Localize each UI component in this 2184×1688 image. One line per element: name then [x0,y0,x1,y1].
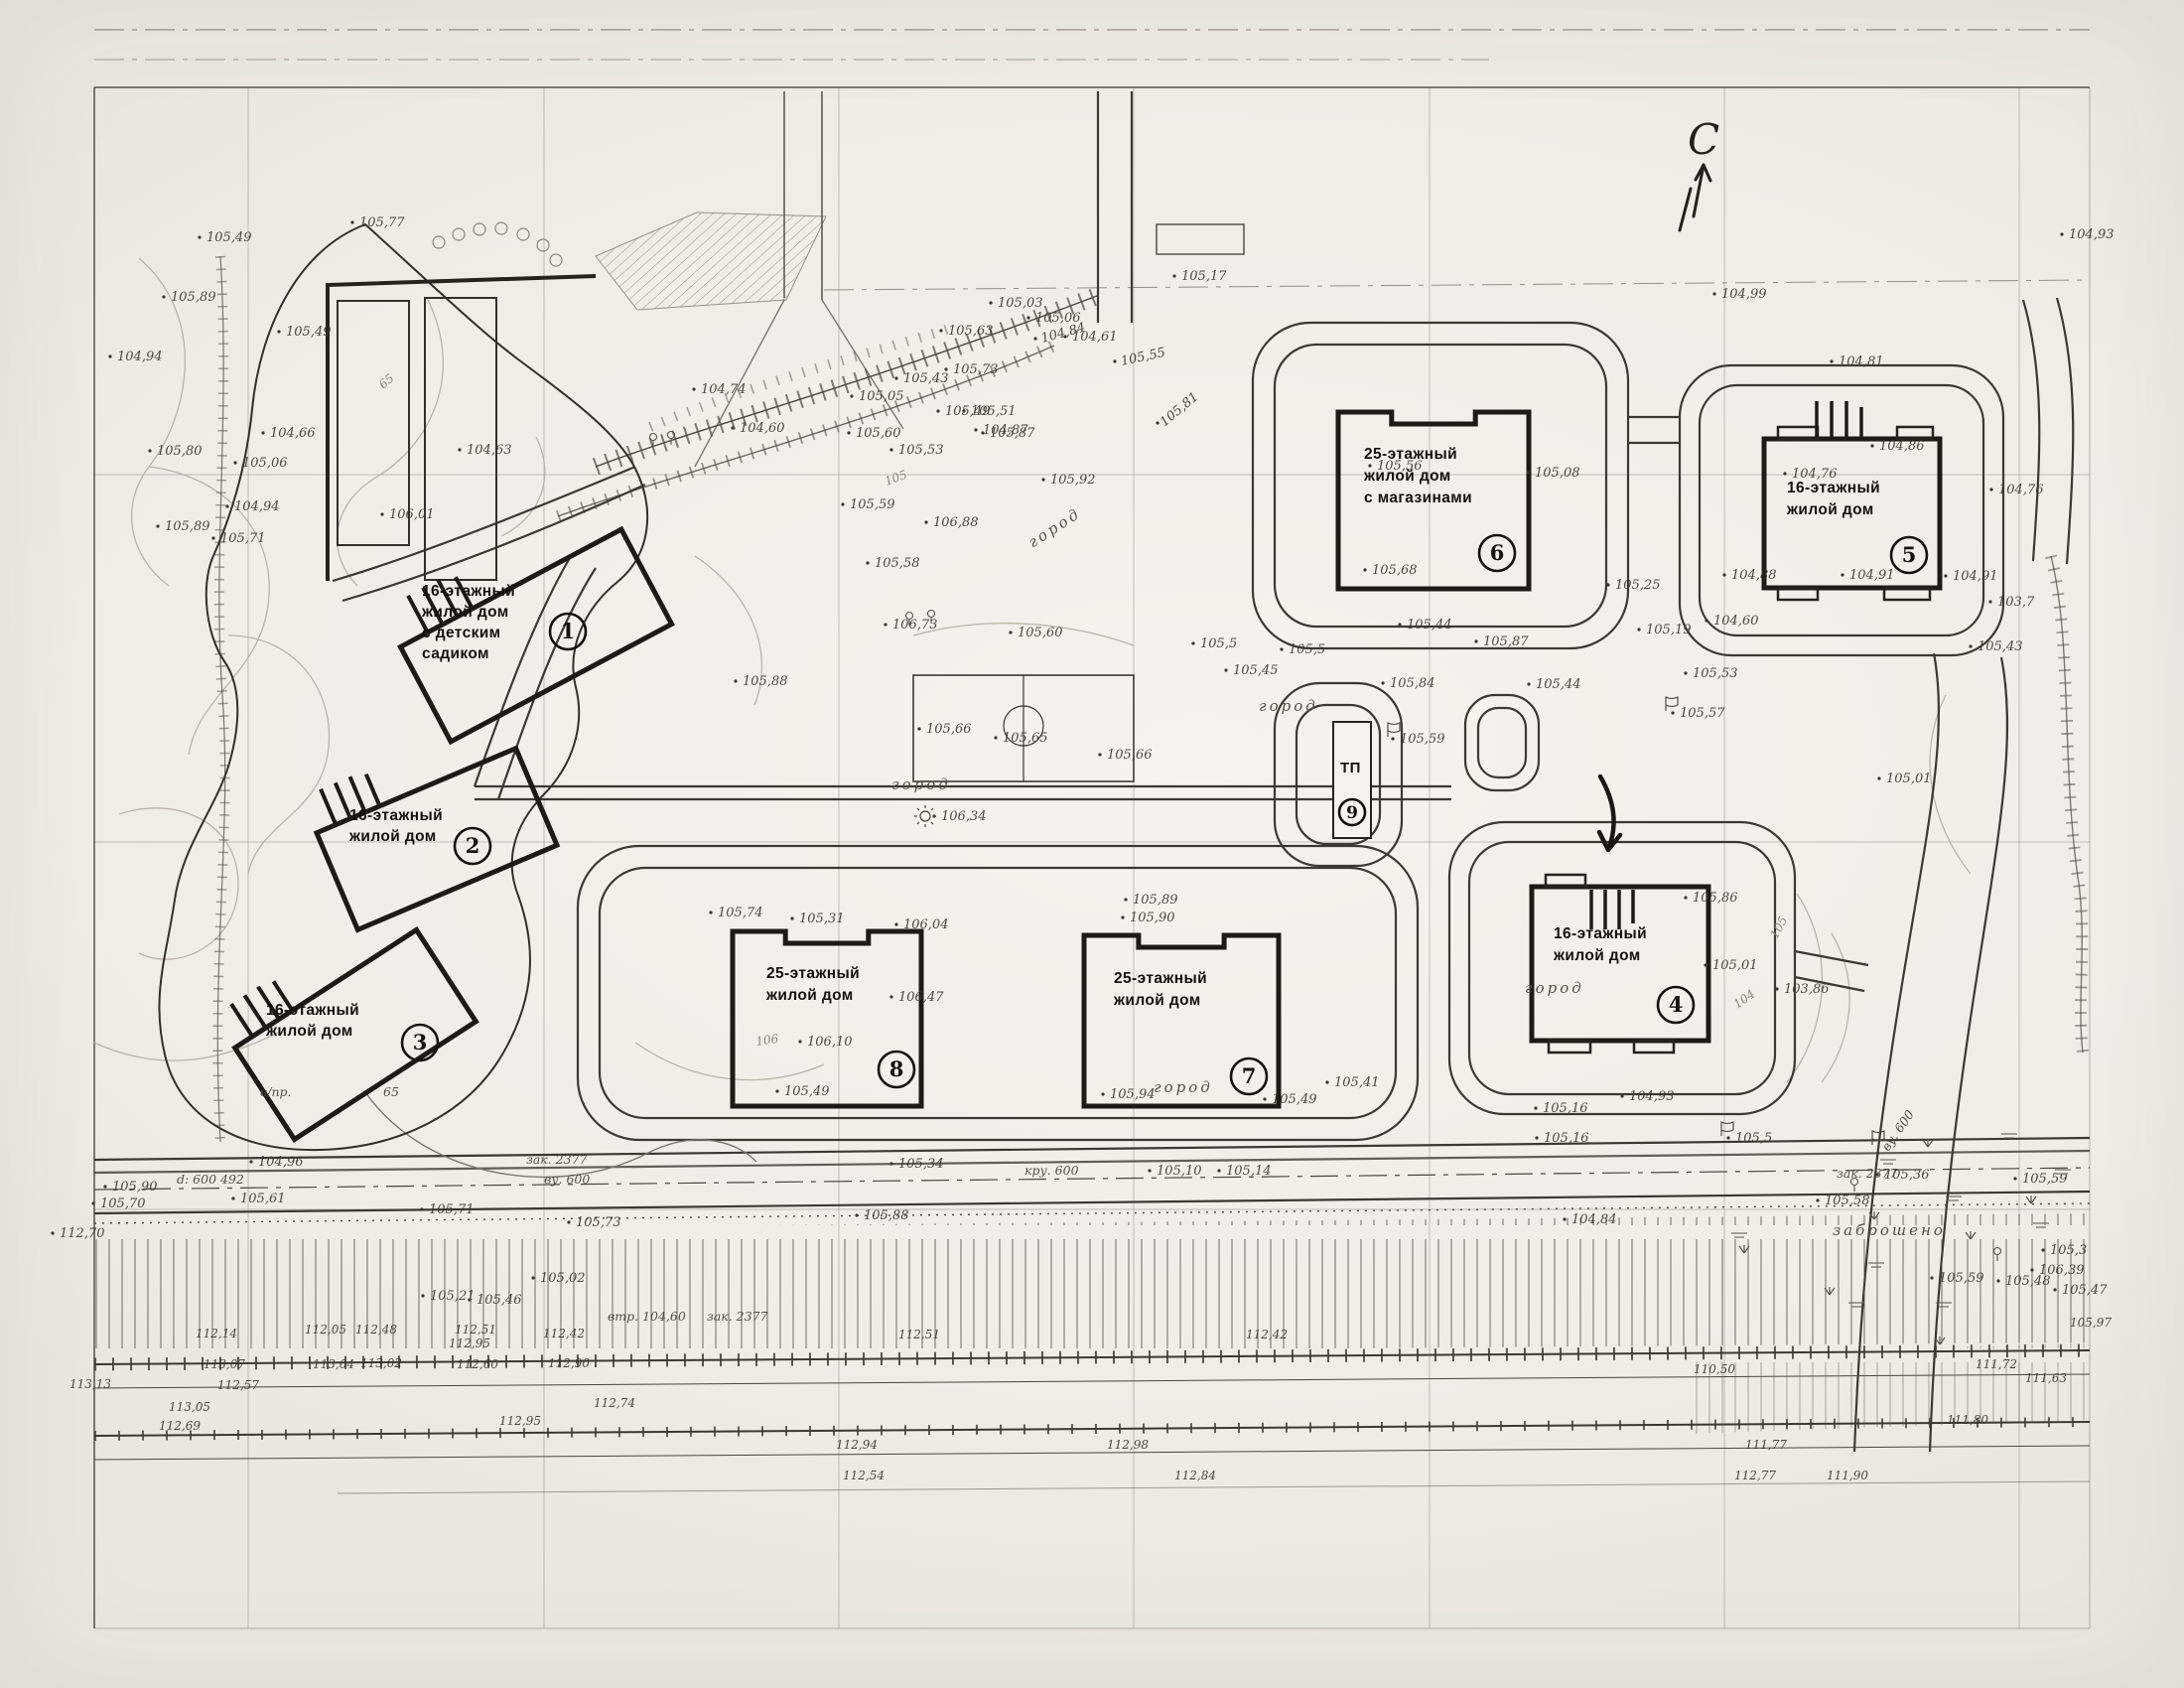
elevation-label: 105,60 [856,426,901,441]
elevation-mark: 104,93 [2060,227,2114,242]
elevation-label: 104,76 [1792,467,1838,482]
elevation-label: 112,60 [457,1357,498,1371]
marsh-icon [2001,1134,2017,1138]
elevation-label: 105,88 [743,674,788,689]
elevation-mark: 106,73 [884,618,937,633]
map-text-город: город [1024,504,1084,552]
elevation-label: 105,43 [1978,639,2023,654]
elevation-mark: 112,57 [217,1378,259,1392]
elevation-label: 105,16 [1543,1101,1588,1116]
elevation-label: 105,61 [240,1192,286,1206]
elevation-mark: 105,71 [211,531,265,546]
elevation-label: 113,04 [313,1357,354,1371]
elevation-mark: 112,70 [51,1226,104,1241]
map-text-заброшено: заброшено [1833,1221,1946,1239]
elevation-label: 104,94 [117,350,163,364]
flag-icon [1666,697,1678,711]
elevation-mark: 105,73 [567,1215,620,1230]
elevation-label: 105,53 [1693,666,1738,681]
elevation-mark: 105,89 [162,290,215,305]
tree-icon [650,434,657,441]
elevation-mark: 105,81 [1156,389,1201,430]
elevation-label: 105,47 [2062,1283,2108,1298]
elevation-label: 111,80 [1947,1413,1988,1427]
elevation-label: 105,87 [1483,634,1529,649]
elevation-label: 105,59 [850,497,895,512]
elevation-mark: 105,5 [1191,636,1237,651]
elevation-label: 105,53 [898,443,944,458]
elevation-mark: 105,59 [841,497,894,512]
elevation-mark: 112,51 [898,1328,940,1341]
note-label: d: 600 492 [177,1172,244,1187]
elevation-label: 105,5 [1289,642,1325,657]
elevation-label: 104,84 [1571,1212,1617,1227]
map-texts-layer: городгородгородгородгородзаброшено [891,504,1946,1239]
elevation-mark: 112,60 [457,1357,498,1371]
elevation-label: 105,10 [1157,1164,1202,1179]
building-2-number: 2 [466,833,480,858]
elevation-label: 105,89 [165,519,210,534]
elevation-label: 113,07 [204,1357,245,1371]
elevation-label: 104,93 [1629,1089,1675,1104]
elevation-label: 104,86 [1879,439,1925,454]
elevation-mark: 112,77 [1734,1469,1776,1482]
elevation-mark: 112,84 [1174,1469,1216,1482]
elevation-mark: 105,03 [989,296,1042,311]
building-4-number: 4 [1669,992,1684,1017]
elevation-label: 105,71 [429,1202,475,1217]
elevation-mark: 105,73 [944,362,998,377]
elevation-label: 113,13 [69,1377,111,1391]
elevation-mark: 105,68 [1363,563,1417,578]
contour-label: 105 [883,468,908,489]
building-1-number: 1 [561,619,576,643]
elevation-label: 105,74 [718,906,763,920]
elevation-mark: 112,05 [305,1323,346,1336]
elevation-mark: 104,99 [1712,287,1766,302]
elevation-label: 111,90 [1827,1469,1868,1482]
elevation-label: 106,10 [807,1035,853,1050]
note-label: зак. 2377 [707,1309,768,1324]
elevation-mark: 110,50 [1694,1362,1735,1376]
elevation-label: 104,93 [2069,227,2115,242]
elevation-mark: 105,90 [103,1180,157,1195]
elevation-label: 105,06 [242,456,288,471]
elevation-label: 112,51 [898,1328,940,1341]
elevation-mark: 105,61 [231,1192,285,1206]
elevation-mark: 105,86 [1684,891,1737,906]
elevation-label: 105,21 [430,1289,476,1304]
elevation-mark: 111,72 [1976,1357,2017,1371]
elevation-mark: 112,48 [355,1323,397,1336]
elevation-label: 106,04 [903,917,949,932]
elevation-label: 112,48 [355,1323,397,1336]
elevation-label: 105,57 [1680,706,1725,721]
building-8-label: жилой дом [765,987,854,1004]
elevation-mark: 105,44 [1398,618,1451,633]
elevation-label: 105,70 [100,1196,146,1211]
elevation-mark: 105,92 [1041,473,1095,488]
elevation-label: 112,70 [60,1226,105,1241]
elevation-label: 105,89 [171,290,216,305]
elevation-mark: 105,49 [1263,1092,1316,1107]
elevation-mark: 105,45 [1224,663,1278,678]
elevation-mark: 112,42 [1246,1328,1288,1341]
elevation-label: 113,05 [169,1400,210,1414]
building-8-number: 8 [889,1056,904,1081]
north-label: С [1688,115,1719,164]
building-8-label: 25-этажный [766,965,860,982]
elevation-label: 105,90 [1130,911,1175,925]
building-5-label: жилой дом [1786,501,1874,518]
elevation-mark: 105,34 [889,1157,943,1172]
elevation-label: 105,02 [540,1271,586,1286]
building-9-number: 9 [1346,803,1358,823]
elevation-mark: 105,94 [1101,1087,1155,1102]
elevation-mark: 105,17 [1172,269,1227,284]
elevation-mark: 105,65 [994,731,1047,746]
note-label: ву. 600 [544,1172,590,1187]
elevation-mark: 105,16 [1534,1101,1587,1116]
elevation-mark: 104,96 [249,1155,303,1170]
elevation-mark: 112,94 [836,1438,878,1452]
elevation-mark: 106,04 [894,917,948,932]
elevation-label: 112,98 [1107,1438,1149,1452]
elevation-mark: 105,74 [709,906,762,920]
elevation-mark: 105,53 [1684,666,1737,681]
building-3-label: жилой дом [265,1023,353,1040]
elevation-label: 105,80 [157,444,203,459]
elevation-mark: 105,02 [531,1271,585,1286]
elevation-label: 105,19 [1646,623,1692,637]
elevation-mark: 105,31 [790,912,844,926]
elevation-label: 112,77 [1734,1469,1776,1482]
elevation-mark: 113,05 [169,1400,210,1414]
elevation-mark: 105,44 [1527,677,1580,692]
elevation-mark: 106,10 [798,1035,852,1050]
elevation-mark: 105,66 [917,722,971,737]
elevation-mark: 105,43 [1969,639,2022,654]
note-label: в/пр. [260,1084,292,1099]
bushes [433,222,562,266]
elevation-mark: 105,53 [889,443,943,458]
elevation-label: 105,66 [1107,748,1153,763]
elevation-mark: 112,14 [196,1327,237,1340]
elevation-mark: 105,66 [1098,748,1152,763]
note-label: втр. 104,60 [608,1309,686,1324]
elevation-label: 112,42 [1246,1328,1288,1341]
elevation-label: 112,51 [455,1323,496,1336]
note-label: 65 [383,1084,399,1099]
elevation-mark: 112,54 [843,1469,885,1482]
building-1-label: жилой дом [421,604,509,621]
elevation-label: 105,56 [1377,459,1423,474]
elevation-mark: 104,91 [1841,568,1894,583]
marsh-icon [1880,1160,1896,1164]
elevation-mark: 105,84 [1381,676,1434,691]
elevation-label: 112,54 [843,1469,885,1482]
elevation-label: 104,99 [1721,287,1767,302]
building-2-label: 16-этажный [349,807,443,824]
building-3-number: 3 [413,1030,428,1055]
elevation-mark: 104,93 [1620,1089,1674,1104]
elevation-label: 105,94 [1110,1087,1156,1102]
flag-icon [1721,1122,1733,1136]
map-text-город: город [1154,1078,1213,1096]
note-label: зак. 2377 [526,1152,588,1167]
elevation-mark: 105,60 [1009,626,1062,640]
left-cluster-boundary [159,224,647,1150]
elevation-mark: 105,05 [850,389,903,404]
elevation-label: 105,05 [859,389,904,404]
elevation-mark: 105,58 [866,556,919,571]
elevation-label: 105,68 [1372,563,1418,578]
elevation-label: 104,66 [270,426,316,441]
elevation-label: 104,76 [1998,483,2044,497]
elevation-label: 105,65 [1003,731,1048,746]
elevation-label: 104,96 [258,1155,304,1170]
elevation-label: 105,58 [1825,1194,1870,1208]
elevation-label: 105,92 [1050,473,1096,488]
elevation-mark: 112,90 [548,1356,590,1370]
elevation-mark: 104,76 [1783,467,1837,482]
elevation-mark: 105,49 [198,230,251,245]
elevation-label: 112,95 [449,1336,490,1350]
elevation-mark: 105,59 [1391,732,1444,747]
elevation-label: 105,49 [1272,1092,1317,1107]
site-plan-page: 16-этажныйжилой домс детскимсадиком116-э… [0,0,2184,1688]
elevation-mark: 105,08 [1526,466,1579,481]
hand-arrow [1599,776,1620,850]
elevation-label: 105,59 [1400,732,1445,747]
building-7-label: 25-этажный [1114,970,1207,987]
existing-structures [328,276,596,581]
elevation-label: 105,73 [953,362,999,377]
building-3-label: 16-этажный [266,1002,359,1019]
elevation-mark: 105,51 [962,404,1016,419]
elevation-label: 105,44 [1407,618,1452,633]
elevation-mark: 105,55 [1113,346,1166,369]
elevation-label: 105,25 [1615,578,1661,593]
elevation-mark: 105,46 [468,1293,521,1308]
elevation-mark: 104,66 [261,426,315,441]
building-7-label: жилой дом [1113,992,1201,1009]
elevation-label: 105,5 [1200,636,1237,651]
elevation-label: 105,46 [477,1293,522,1308]
contour-label: 105 [1767,914,1790,941]
elevation-label: 104,94 [234,499,280,514]
elevation-mark: 105,47 [2053,1283,2108,1298]
elevation-mark: 105,16 [1535,1131,1588,1146]
elevation-mark: 105,87 [1474,634,1529,649]
elevation-label: 105,08 [1535,466,1580,481]
elevation-label: 106,47 [898,990,944,1005]
elevation-mark: 105,89 [156,519,209,534]
tree-icon [928,611,935,618]
elevation-label: 103,86 [1784,982,1830,997]
elevation-mark: 104,60 [731,421,784,436]
building-6-label: с магазинами [1364,490,1472,506]
building-4-label: 16-этажный [1554,925,1647,942]
building-labels-layer: 16-этажныйжилой домс детскимсадиком116-э… [265,446,1927,1094]
elevation-mark: 105,21 [421,1289,475,1304]
elevation-label: 105,17 [1181,269,1227,284]
elevation-label: 106,01 [389,507,435,522]
elevation-label: 105,58 [875,556,920,571]
elevation-label: 105,71 [220,531,266,546]
elevation-mark: 104,86 [1870,439,1924,454]
map-text-город: город [1259,697,1318,715]
contour-label: 106 [754,1032,779,1049]
elevation-label: 105,77 [359,215,405,230]
elevation-label: 105,14 [1226,1164,1272,1179]
building-9-label: ТП [1340,760,1361,776]
elevation-mark: 105,71 [420,1202,474,1217]
building-1-label: 16-этажный [422,583,515,600]
elevation-mark: 105,97 [2070,1316,2112,1330]
elevation-label: 105,49 [206,230,252,245]
elevation-mark: 112,98 [1107,1438,1149,1452]
elevation-label: 112,57 [217,1378,259,1392]
elevation-mark: 105,25 [1606,578,1660,593]
elevation-mark: 106,88 [924,515,978,530]
elevation-label: 106,34 [941,809,987,824]
building-5-label: 16-этажный [1787,480,1880,496]
elevation-label: 112,74 [594,1396,635,1410]
grass-icon [2026,1196,2036,1203]
note-label: зак. 2377 [1837,1166,1898,1181]
elevation-label: 104,61 [1072,330,1118,345]
elevation-label: 105,41 [1334,1075,1380,1090]
elevation-mark: 104,94 [108,350,162,364]
elevation-label: 104,91 [1953,569,1998,584]
elevation-label: 105,55 [1120,346,1167,369]
elevation-mark: 104,88 [1722,568,1776,583]
elevation-mark: 104,81 [1830,354,1883,369]
elevation-mark: 103,86 [1775,982,1829,997]
elevation-label: 105,51 [971,404,1017,419]
elevation-label: 112,42 [543,1327,585,1340]
elevation-mark: 105,49 [775,1084,829,1099]
elevation-mark: 105,88 [734,674,787,689]
elevation-mark: 105,49 [277,325,331,340]
north-arrow: С [1680,115,1719,230]
elevation-label: 105,16 [1544,1131,1589,1146]
elevation-label: 105,86 [1693,891,1738,906]
elevation-mark: 106,47 [889,990,944,1005]
elevation-label: 105,97 [2070,1316,2112,1330]
elevation-mark: 105,63 [939,324,993,339]
elevation-mark: 112,42 [543,1327,585,1340]
elevation-mark: 105,19 [1637,623,1691,637]
elevation-mark: 105,43 [894,371,948,386]
elevation-mark: 113,13 [69,1377,111,1391]
elevation-label: 111,63 [2025,1371,2067,1385]
elevation-mark: 104,63 [458,443,511,458]
elevation-mark: 105,41 [1325,1075,1379,1090]
contour-label: 65 [376,371,397,392]
building-1-label: садиком [422,645,489,662]
elevation-label: 112,69 [159,1419,201,1433]
elevation-label: 105,49 [784,1084,830,1099]
elevation-mark: 105,10 [1148,1164,1201,1179]
elevation-label: 112,84 [1174,1469,1216,1482]
building-5-number: 5 [1902,542,1917,567]
elevation-label: 104,63 [467,443,512,458]
elevation-label: 112,05 [305,1323,346,1336]
elevation-mark: 105,80 [148,444,202,459]
elevation-label: 112,95 [499,1414,541,1428]
elevation-label: 105,5 [1735,1131,1772,1146]
elevation-label: 105,01 [1712,958,1758,973]
elevation-mark: 105,58 [1816,1194,1869,1208]
elevation-mark: 111,77 [1745,1438,1787,1452]
elevation-mark: 105,77 [350,215,405,230]
map-text-город: город [891,775,951,793]
elevation-label: 105,88 [864,1208,909,1223]
elevation-label: 105,89 [1133,893,1178,908]
elevation-mark: 105,01 [1704,958,1757,973]
elevation-label: 105,63 [948,324,994,339]
building-4-label: жилой дом [1553,947,1641,964]
building-7-number: 7 [1242,1063,1257,1088]
elevation-mark: 105,14 [1217,1164,1271,1179]
elevation-mark: 106,34 [932,809,986,824]
elevation-label: 112,14 [196,1327,237,1340]
elevation-mark: 105,01 [1877,772,1931,786]
elevation-mark: 112,74 [594,1396,635,1410]
elevation-mark: 112,95 [499,1414,541,1428]
elevation-mark: 113,07 [204,1357,245,1371]
elevation-label: 112,90 [548,1356,590,1370]
elevation-mark: 105,60 [847,426,900,441]
elevation-label: 111,77 [1745,1438,1787,1452]
site-plan-map: 16-этажныйжилой домс детскимсадиком116-э… [0,0,2184,1688]
elevation-label: 105,49 [286,325,332,340]
elevation-label: 105,34 [898,1157,944,1172]
elevation-mark: 104,76 [1989,483,2043,497]
elevation-mark: 112,69 [159,1419,201,1433]
elevation-label: 104,81 [1839,354,1884,369]
elevation-mark: 104,94 [225,499,279,514]
flag-symbols [1388,697,1884,1145]
elevation-label: 105,84 [1390,676,1435,691]
elevation-label: 105,45 [1233,663,1279,678]
elevation-label: 105,90 [112,1180,158,1195]
elevation-mark: 113,02 [360,1356,402,1370]
elevation-label: 105,81 [1158,389,1201,430]
elevation-mark: 105,90 [1121,911,1174,925]
elevation-label: 104,74 [701,382,747,397]
building-1-label: с детским [422,625,501,641]
elevation-label: 105,03 [998,296,1043,311]
elevation-label: 104,87 [983,423,1028,438]
elevation-mark: 113,04 [313,1357,354,1371]
elevation-label: 105,31 [799,912,845,926]
contour-label: 104 [1731,987,1758,1012]
elevation-label: 104,60 [740,421,785,436]
elevation-label: 106,88 [933,515,979,530]
elevation-mark: 111,90 [1827,1469,1868,1482]
elevation-mark: 105,5 [1726,1131,1772,1146]
elevation-mark: 104,87 [974,423,1028,438]
elevation-label: 105,66 [926,722,972,737]
elevation-mark: 106,39 [2030,1263,2084,1278]
elevation-label: 112,94 [836,1438,878,1452]
elevation-mark: 105,59 [1930,1271,1983,1286]
map-text-город: город [1525,979,1584,997]
elevation-mark: 112,95 [449,1336,490,1350]
